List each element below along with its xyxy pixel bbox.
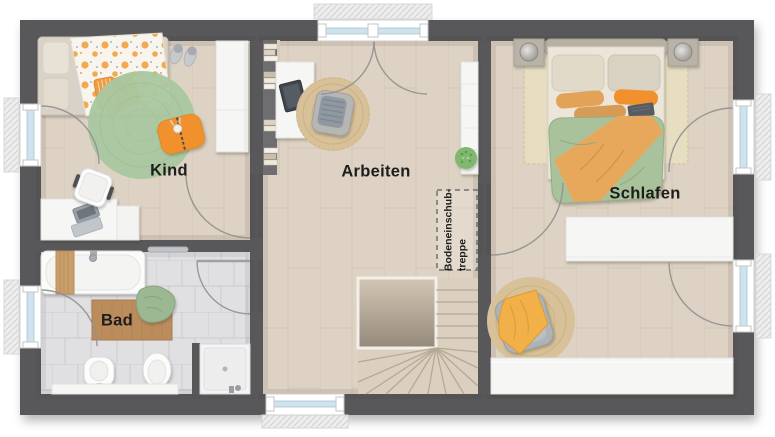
room-label-bad: Bad [101,312,133,331]
stair-opening [358,278,436,348]
room-label-schlafen: Schlafen [609,185,680,204]
double-bed-icon [544,39,668,203]
vanity-counter [52,384,178,394]
floorplan-drawing [0,0,775,437]
nightstand-right [668,39,698,66]
schlafen-dresser [566,217,733,261]
room-label-kind: Kind [150,162,188,181]
lamp-icon [674,43,692,61]
toilet-icon [143,353,171,387]
shower-partition-wall [192,343,200,394]
window-right-schlafen-top [733,94,771,180]
window-left-kind [4,98,41,172]
armchair-icon [310,89,355,137]
bidet-icon [84,357,114,388]
balcony-door-window-top [314,4,432,41]
nightstand-left [514,39,544,66]
attic-stairs-label: Bodeneinschub- treppe [442,189,469,271]
staircase [358,278,478,394]
room-label-arbeiten: Arbeiten [341,163,410,182]
shower-icon [200,344,250,394]
attic-stairs-label-line1: Bodeneinschub- [442,189,456,271]
bathtub-icon [41,251,145,294]
attic-stairs-label-line2: treppe [456,189,470,271]
floorplan-canvas: Kind Arbeiten Schlafen Bad Bodeneinschub… [0,0,775,437]
towel-rail-icon [148,247,188,252]
lamp-icon [520,43,538,61]
window-left-bad [4,280,41,354]
schlafen-sideboard [491,358,733,394]
plant-icon [455,147,477,169]
window-right-schlafen-bottom [733,254,771,338]
window-bottom-stairs [262,394,348,428]
kind-wardrobe [216,41,248,152]
